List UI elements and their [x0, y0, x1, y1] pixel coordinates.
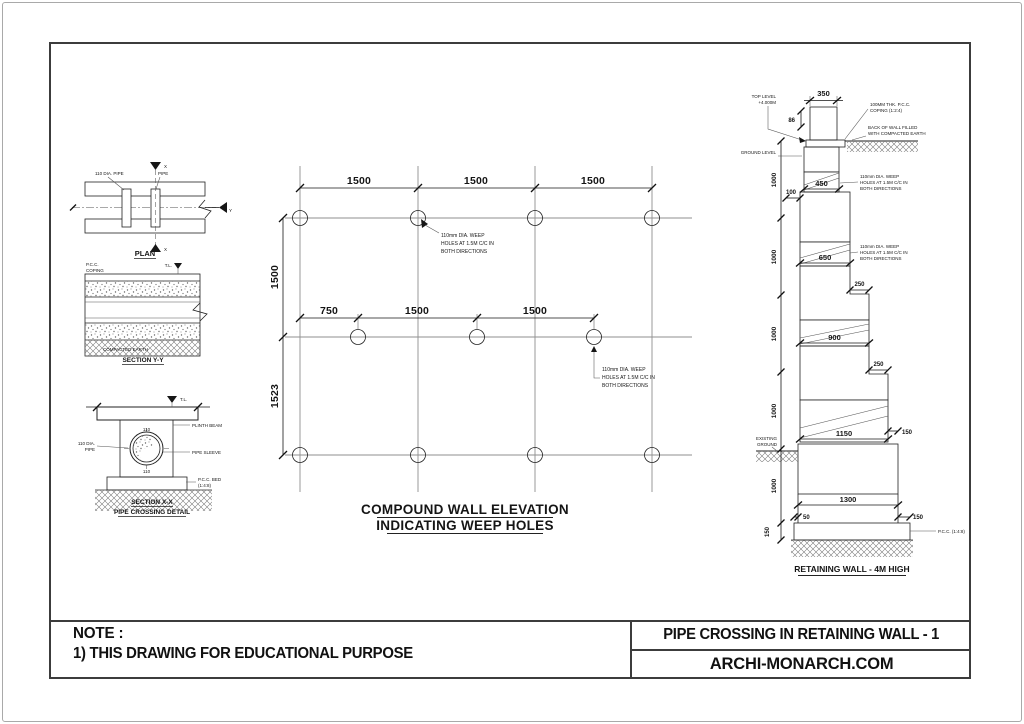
dim-label: 450 [815, 179, 828, 188]
sxx-note-right-3: P.C.C. BED [198, 477, 222, 482]
syy-concrete-top [85, 281, 200, 297]
dim-label: 1150 [836, 429, 852, 438]
wall-course-4 [800, 266, 869, 320]
section-xx-drawing: T.L. 110 110 110 DIA. PIPE PLINTH BEAM P… [78, 396, 222, 517]
wall-course-top [810, 107, 837, 140]
weep-note-line: HOLES AT 1.5M C/C IN [441, 241, 494, 247]
wall-course-2 [804, 147, 839, 172]
elevation-title-2: INDICATING WEEP HOLES [376, 518, 554, 533]
plan-title: PLAN [135, 249, 155, 258]
dim-label: 750 [320, 305, 338, 317]
wall-note-ground-level: GROUND LEVEL [741, 150, 777, 155]
sxx-subtitle: PIPE CROSSING DETAIL [114, 509, 190, 516]
elevation-grid-verticals [300, 166, 652, 492]
weep-note-line: HOLES AT 1.5M C/C IN [860, 250, 908, 255]
wall-course-6 [798, 444, 898, 494]
dim-label: 1000 [771, 326, 778, 341]
note-text: 1) THIS DRAWING FOR EDUCATIONAL PURPOSE [73, 645, 413, 663]
dim-label: 250 [873, 362, 884, 368]
plan-wall-band-top [85, 182, 205, 196]
dim-label: 50 [803, 515, 810, 521]
syy-note-top-2: COPING [86, 268, 104, 273]
dim-label: 150 [765, 526, 771, 537]
sxx-plinth-beam [97, 407, 198, 420]
retained-ground-hatch [847, 141, 918, 152]
wall-note-coping-1: 100MM THK. P.C.C. [870, 102, 910, 107]
note-label: NOTE : [73, 625, 123, 643]
plan-note-leaders [108, 177, 160, 190]
dim-label: 150 [913, 515, 924, 521]
section-yy-drawing: T.L. P.C.C. COPING COMPACTED EARTH SECTI… [85, 262, 207, 365]
wall-note-coping-2: COPING (1:2:4) [870, 108, 903, 113]
weep-note-line: 110mm DIA. WEEP [860, 244, 899, 249]
dim-label: 1500 [269, 265, 281, 289]
wall-note-existing-2: GROUND [757, 442, 778, 447]
brand-cell: ARCHI-MONARCH.COM [632, 649, 971, 679]
syy-title: SECTION Y-Y [122, 357, 164, 364]
elevation-dim-extensions [358, 314, 594, 330]
sxx-note-right-1: PLINTH BEAM [192, 423, 222, 428]
dim-label: 100 [786, 190, 797, 196]
section-marker-top-icon [150, 162, 161, 170]
dim-label: 1500 [523, 305, 547, 317]
sheet-title: PIPE CROSSING IN RETAINING WALL - 1 [664, 626, 940, 644]
dim-label: 650 [819, 253, 832, 262]
dim-label: 1300 [840, 495, 857, 504]
wall-course-3 [800, 192, 850, 242]
sheet-title-cell: PIPE CROSSING IN RETAINING WALL - 1 [632, 620, 971, 649]
weep-leader [840, 182, 858, 183]
elevation-grid-horizontals [285, 218, 692, 455]
sxx-level-label: T.L. [180, 397, 187, 402]
dim-label: 250 [854, 282, 865, 288]
wall-note-top-level-1: TOP LEVEL [752, 94, 777, 99]
dim-label: 1523 [269, 384, 281, 408]
plan-note-right: PIPE [158, 171, 168, 176]
syy-concrete-bottom [85, 323, 200, 340]
existing-ground-hatch [756, 451, 798, 462]
weep-note-line: HOLES AT 1.5M C/C IN [860, 180, 908, 185]
elevation-drawing: 1500 1500 1500 750 1500 1500 1500 1523 1… [269, 166, 692, 534]
dim-label: 1500 [347, 175, 371, 187]
weep-note-line: 110mm DIA. WEEP [602, 367, 646, 373]
sxx-dim-top: 110 [143, 427, 151, 432]
retaining-wall-drawing: 350 86 450 100 650 250 250 900 1150 150 [741, 89, 966, 576]
sxx-note-right-4: (1:4:8) [198, 483, 212, 488]
dim-label: 150 [902, 430, 913, 436]
syy-note-top-1: P.C.C. [86, 262, 99, 267]
wall-footing [794, 523, 910, 540]
sxx-left-leader [97, 446, 128, 448]
weep-note-line: BOTH DIRECTIONS [860, 256, 902, 261]
wall-note-top-level-2: +4.000M [758, 100, 776, 105]
weep-leader [850, 252, 858, 253]
leader-arrow-icon [591, 346, 597, 352]
weep-leader-1 [425, 225, 439, 233]
dim-label: 86 [788, 118, 795, 124]
dim-label: 1000 [771, 249, 778, 264]
wall-note-backfill-1: BACK OF WALL FILLED [868, 125, 918, 130]
wall-note-backfill-2: WITH COMPACTED EARTH [868, 131, 926, 136]
sxx-title: SECTION X-X [131, 499, 173, 506]
drawing-sheet: { "title_block": { "note_label": "NOTE :… [0, 0, 1024, 724]
sxx-footing [107, 477, 187, 490]
dim-label: 350 [817, 89, 830, 98]
level-marker-icon [174, 263, 182, 269]
weep-note-line: 110mm DIA. WEEP [441, 233, 485, 239]
section-marker-side-icon [219, 202, 227, 213]
brand-name: ARCHI-MONARCH.COM [710, 654, 894, 674]
drawing-canvas: X X Y 110 DIA. PIPE PIPE PLAN T.L. P.C.C… [0, 0, 1024, 724]
plan-drawing: X X Y 110 DIA. PIPE PIPE PLAN [70, 162, 232, 259]
existing-ground-leader [772, 447, 777, 451]
top-level-leader [768, 106, 802, 140]
elevation-title-1: COMPOUND WALL ELEVATION [361, 502, 569, 517]
wall-coping [806, 140, 845, 147]
plan-break-line [199, 200, 211, 218]
syy-level-label: T.L. [165, 263, 172, 268]
dim-label: 1500 [405, 305, 429, 317]
weep-note-line: 110mm DIA. WEEP [860, 174, 899, 179]
backfill-leader [852, 136, 866, 140]
weep-leader-2 [594, 352, 600, 378]
weep-note-line: BOTH DIRECTIONS [602, 383, 649, 389]
plan-marker-top-label: X [164, 164, 167, 169]
footing-earth-hatch [791, 540, 913, 557]
dim-label: 1000 [771, 403, 778, 418]
dim-label: 1500 [581, 175, 605, 187]
plan-marker-side-label: Y [229, 208, 232, 213]
coping-leader [845, 109, 868, 139]
sxx-note-left-2: PIPE [85, 447, 95, 452]
wall-course-5 [800, 346, 888, 400]
weep-note-line: BOTH DIRECTIONS [860, 186, 902, 191]
plan-note-left: 110 DIA. PIPE [95, 171, 124, 176]
wall-note-existing-1: EXISTING [756, 436, 778, 441]
dim-label: 1000 [771, 172, 778, 187]
sxx-note-right-2: PIPE SLEEVE [192, 450, 221, 455]
leader-arrow-icon [799, 137, 806, 143]
dim-label: 900 [828, 333, 841, 342]
syy-pipe-lines [85, 302, 200, 318]
plan-marker-bottom-label: X [164, 247, 167, 252]
plan-wall-band-bottom [85, 219, 205, 233]
wall-note-pcc: P.C.C. (1:4:8) [938, 529, 965, 534]
syy-note-bottom: COMPACTED EARTH [103, 347, 148, 352]
plan-pipe-1 [122, 189, 131, 227]
weep-note-line: HOLES AT 1.5M C/C IN [602, 375, 655, 381]
dim-label: 1500 [464, 175, 488, 187]
dim-label: 1000 [771, 478, 778, 493]
sxx-dim-bottom: 110 [143, 469, 151, 474]
sxx-note-left-1: 110 DIA. [78, 441, 95, 446]
wall-title: RETAINING WALL - 4M HIGH [794, 564, 909, 574]
leader-arrow-icon [421, 219, 428, 228]
weep-note-line: BOTH DIRECTIONS [441, 249, 488, 255]
level-marker-icon [167, 396, 177, 403]
